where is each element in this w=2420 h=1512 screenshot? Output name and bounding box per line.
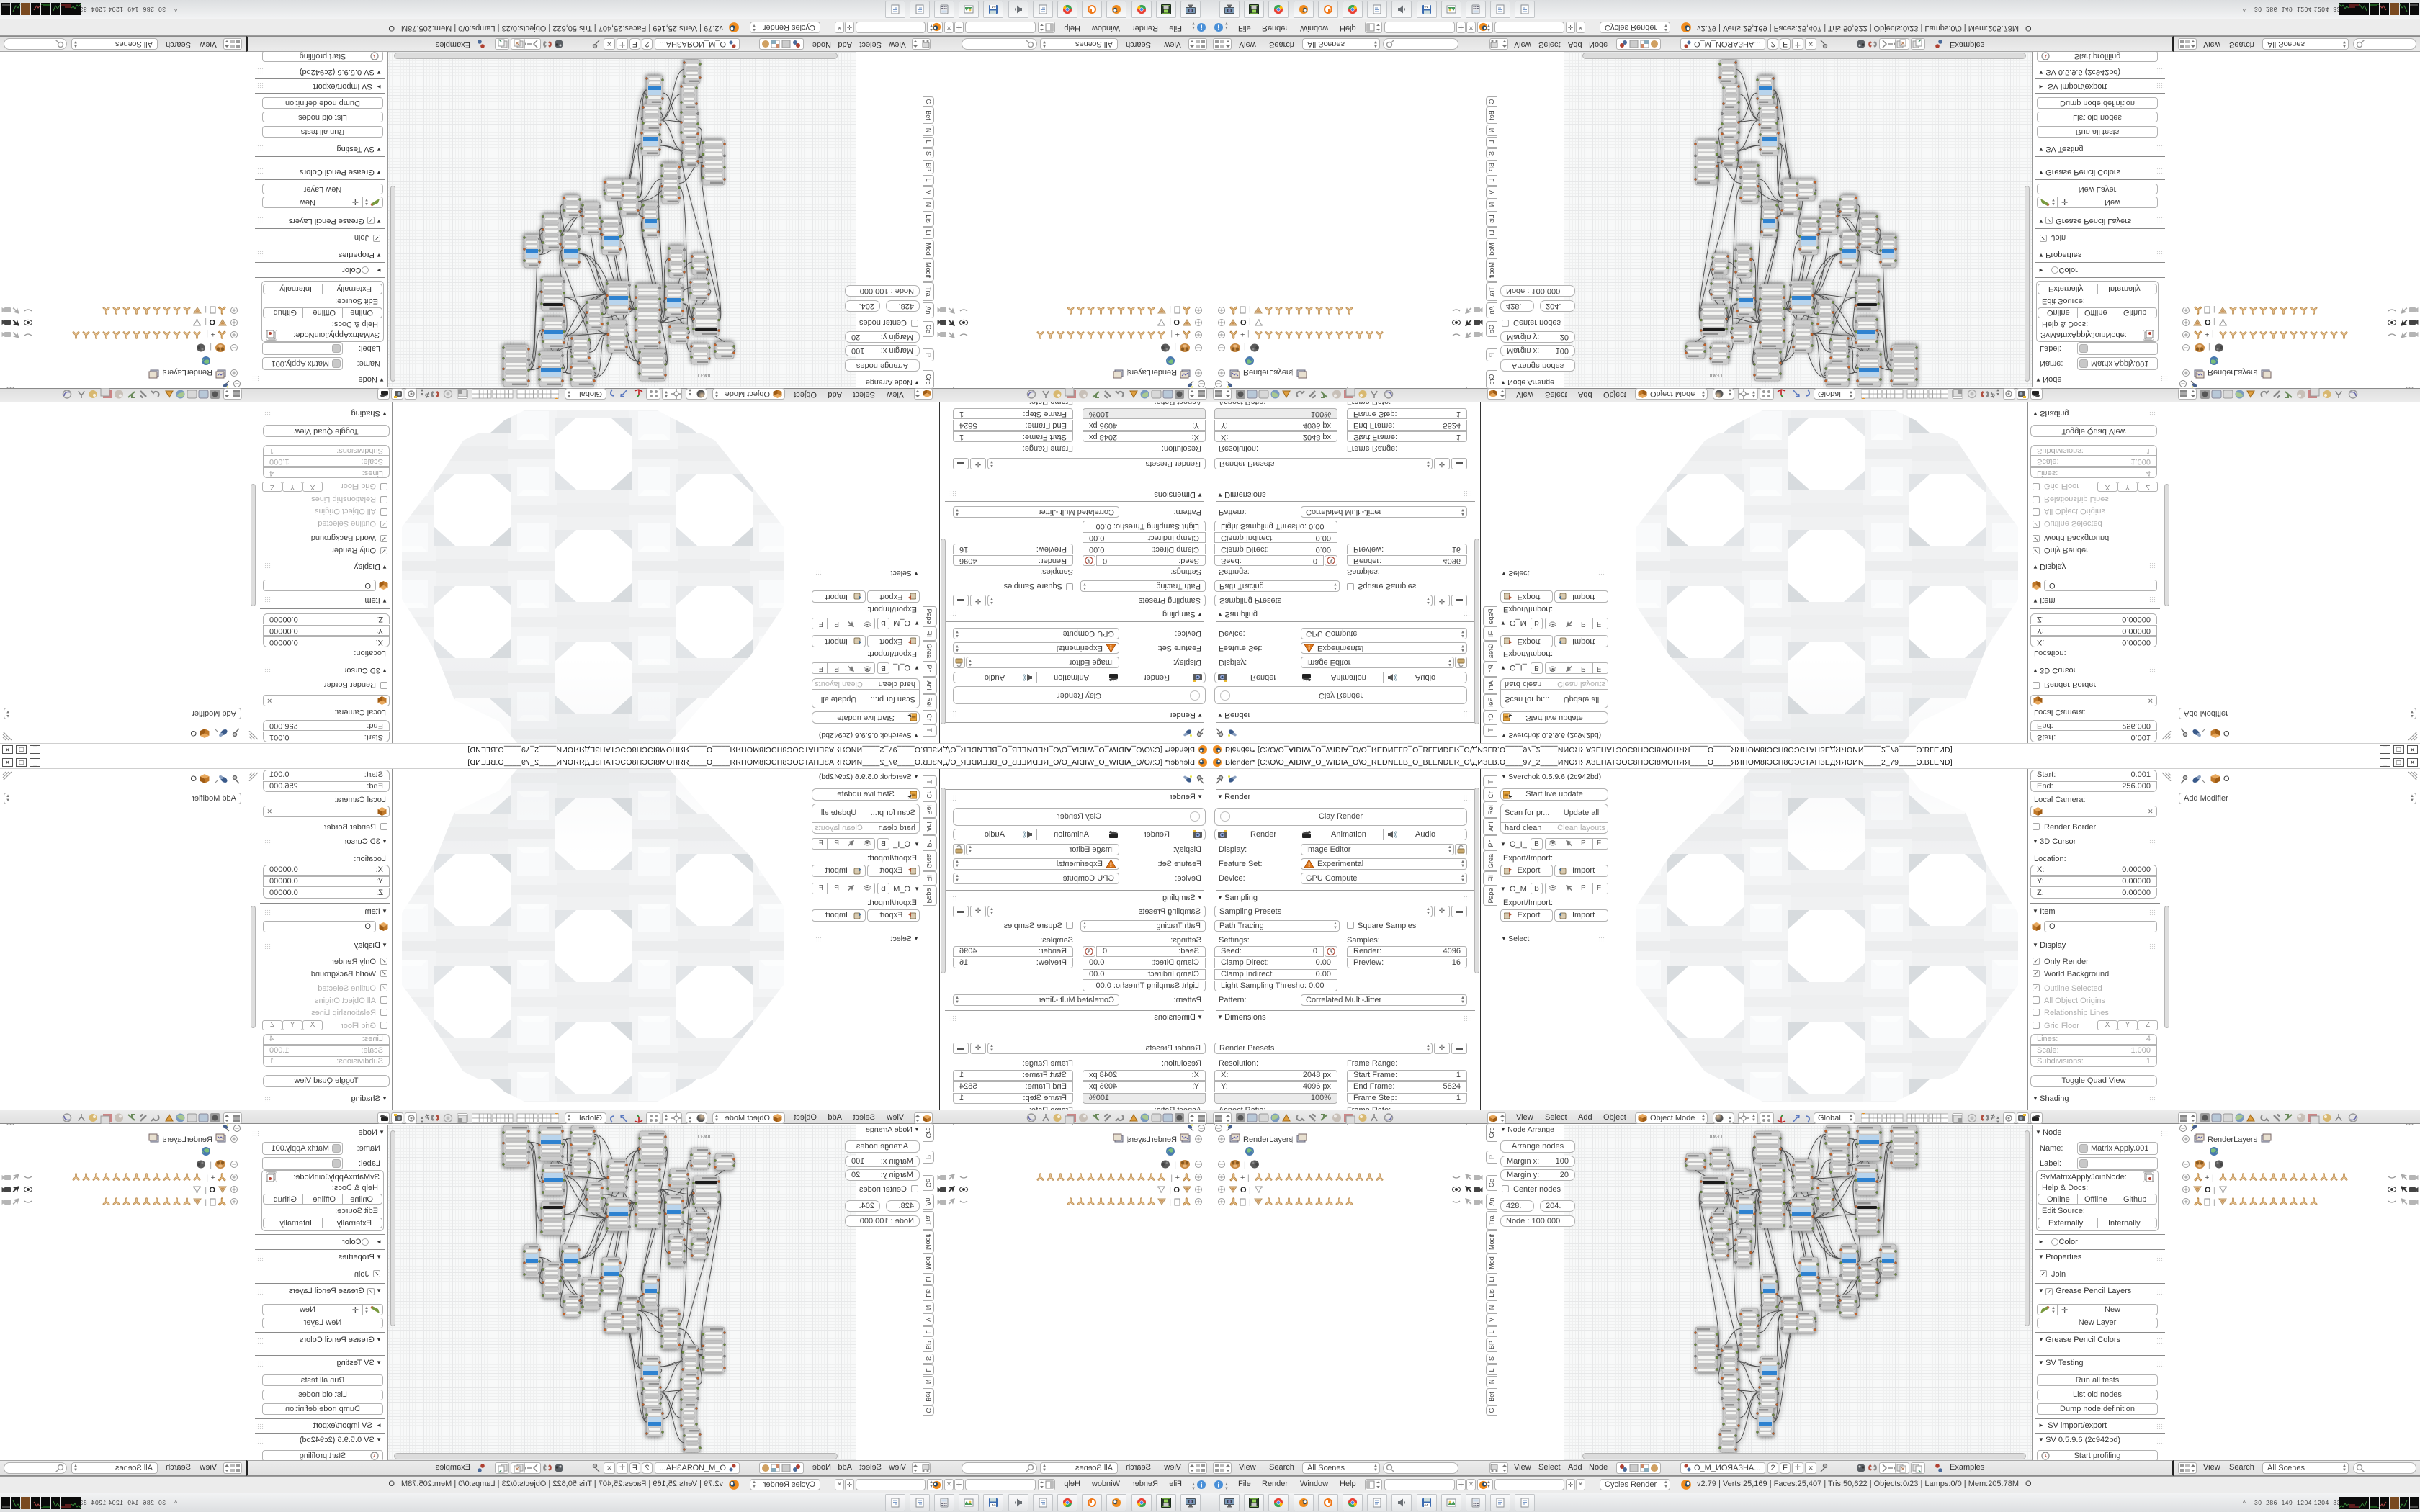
svg-text:|: | bbox=[2212, 1174, 2214, 1182]
svg-text:В.М.-/ J I: В.М.-/ J I bbox=[1710, 1135, 1724, 1139]
svg-text:|: | bbox=[1291, 1136, 1294, 1144]
svg-text:|: | bbox=[1247, 330, 1250, 338]
svg-text:O: O bbox=[209, 318, 215, 326]
svg-text:RenderLayers: RenderLayers bbox=[1243, 368, 1294, 377]
svg-text:|: | bbox=[1249, 1187, 1251, 1194]
svg-text:RenderLayers: RenderLayers bbox=[1126, 1135, 1177, 1144]
svg-text:|: | bbox=[1126, 368, 1129, 376]
svg-text:|: | bbox=[205, 1199, 207, 1207]
svg-text:|: | bbox=[1244, 343, 1246, 351]
svg-text:|: | bbox=[205, 305, 207, 313]
svg-text:В.М.-/ J I: В.М.-/ J I bbox=[1710, 373, 1724, 377]
svg-text:|: | bbox=[205, 318, 207, 325]
svg-text:+: + bbox=[1175, 330, 1180, 338]
svg-text:O: O bbox=[1173, 1186, 1180, 1194]
svg-text:O: O bbox=[1240, 318, 1247, 326]
svg-text:|: | bbox=[1247, 1174, 1250, 1182]
svg-text:RenderLayers: RenderLayers bbox=[2208, 368, 2258, 377]
svg-text:|: | bbox=[162, 1136, 164, 1144]
svg-text:|: | bbox=[2208, 343, 2210, 351]
svg-text:|: | bbox=[1169, 1187, 1171, 1194]
svg-text:64: 64 bbox=[1424, 5, 1428, 9]
svg-text:+: + bbox=[211, 1174, 215, 1182]
svg-text:O: O bbox=[2205, 1186, 2211, 1194]
svg-text:|: | bbox=[1126, 1136, 1129, 1144]
svg-text:O: O bbox=[2205, 318, 2211, 326]
svg-text:+: + bbox=[1240, 1174, 1245, 1182]
svg-text:|: | bbox=[1170, 1174, 1173, 1182]
svg-text:+: + bbox=[1175, 1174, 1180, 1182]
svg-text:В.М.-/ J I: В.М.-/ J I bbox=[696, 1135, 710, 1139]
svg-text:|: | bbox=[1249, 305, 1251, 313]
svg-text:|: | bbox=[210, 1161, 212, 1169]
svg-text:RenderLayers: RenderLayers bbox=[1243, 1135, 1294, 1144]
svg-text:+: + bbox=[1240, 330, 1245, 338]
svg-text:O: O bbox=[1240, 1186, 1247, 1194]
svg-text:|: | bbox=[2213, 318, 2215, 325]
svg-text:|: | bbox=[206, 330, 208, 338]
svg-text:|: | bbox=[2212, 330, 2214, 338]
svg-text:64: 64 bbox=[992, 5, 996, 9]
svg-text:RenderLayers: RenderLayers bbox=[1126, 368, 1177, 377]
svg-text:+: + bbox=[211, 330, 215, 338]
svg-text:|: | bbox=[1169, 305, 1171, 313]
svg-text:|: | bbox=[1291, 368, 1294, 376]
svg-text:+: + bbox=[2205, 330, 2209, 338]
svg-text:|: | bbox=[1169, 1199, 1171, 1207]
svg-text:64: 64 bbox=[992, 1503, 996, 1507]
svg-text:|: | bbox=[1244, 1161, 1246, 1169]
svg-text:|: | bbox=[2208, 1161, 2210, 1169]
svg-text:RenderLayers: RenderLayers bbox=[162, 368, 212, 377]
svg-text:64: 64 bbox=[1424, 1503, 1428, 1507]
svg-text:|: | bbox=[2213, 1187, 2215, 1194]
svg-text:|: | bbox=[2213, 305, 2215, 313]
svg-text:|: | bbox=[206, 1174, 208, 1182]
svg-text:RenderLayers: RenderLayers bbox=[162, 1135, 212, 1144]
svg-text:|: | bbox=[162, 368, 164, 376]
svg-text:O: O bbox=[1173, 318, 1180, 326]
svg-text:|: | bbox=[2256, 368, 2258, 376]
svg-text:|: | bbox=[2213, 1199, 2215, 1207]
svg-text:В.М.-/ J I: В.М.-/ J I bbox=[696, 373, 710, 377]
svg-text:|: | bbox=[1174, 343, 1176, 351]
svg-text:|: | bbox=[2256, 1136, 2258, 1144]
svg-text:|: | bbox=[1249, 1199, 1251, 1207]
svg-text:RenderLayers: RenderLayers bbox=[2208, 1135, 2258, 1144]
svg-text:|: | bbox=[1174, 1161, 1176, 1169]
svg-text:O: O bbox=[209, 1186, 215, 1194]
svg-text:|: | bbox=[210, 343, 212, 351]
svg-text:|: | bbox=[205, 1187, 207, 1194]
svg-text:|: | bbox=[1169, 318, 1171, 325]
svg-text:+: + bbox=[2205, 1174, 2209, 1182]
svg-text:|: | bbox=[1249, 318, 1251, 325]
svg-text:|: | bbox=[1170, 330, 1173, 338]
